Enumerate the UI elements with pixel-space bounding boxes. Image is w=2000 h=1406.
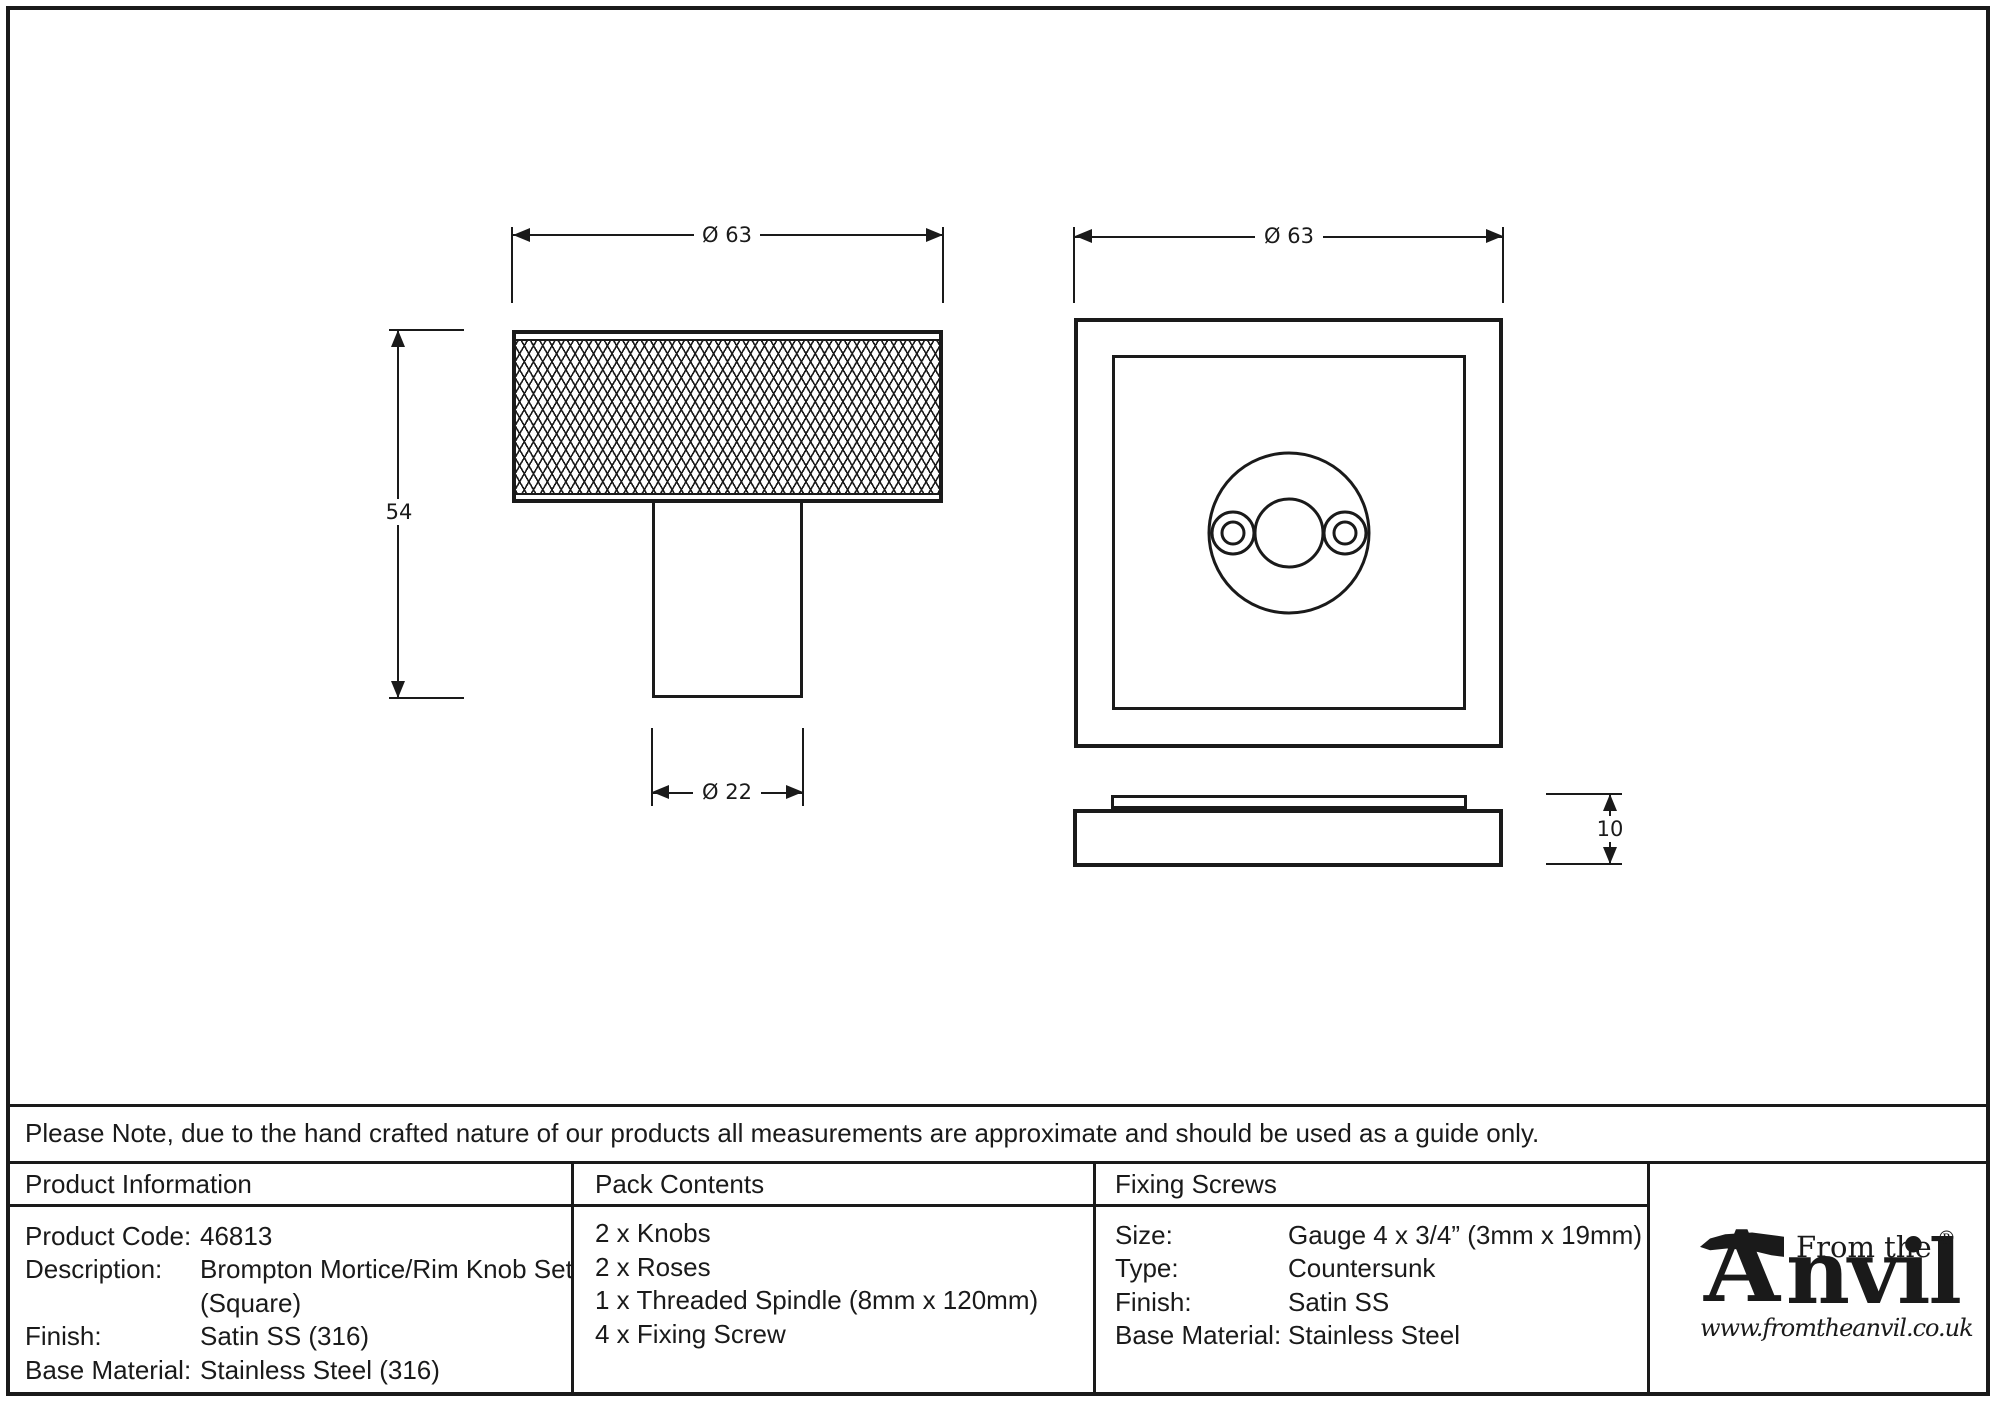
screw-base-material-label: Base Material: <box>1115 1321 1281 1349</box>
screw-hole-right-inner <box>1334 522 1356 544</box>
rose-width-dimension-label: Ø 63 <box>1255 223 1323 249</box>
knob-width-arrow-left <box>513 228 530 242</box>
pack-item: 4 x Fixing Screw <box>595 1320 786 1348</box>
product-information-header: Product Information <box>25 1163 252 1205</box>
knob-stem <box>652 503 803 698</box>
stem-arrow-right <box>786 785 803 799</box>
screw-hole-left-outer <box>1212 512 1254 554</box>
header-row-bottom-line <box>10 1204 1650 1207</box>
screw-type-label: Type: <box>1115 1254 1179 1282</box>
product-code-label: Product Code: <box>25 1222 191 1250</box>
pack-item: 1 x Threaded Spindle (8mm x 120mm) <box>595 1286 1038 1314</box>
knob-height-dimension-label: 54 <box>374 499 424 525</box>
rose-width-arrow-left <box>1075 229 1092 243</box>
pack-contents-header: Pack Contents <box>595 1163 764 1205</box>
screw-hole-right-outer <box>1324 512 1366 554</box>
screw-hole-left-inner <box>1222 522 1244 544</box>
anvil-icon <box>1700 1231 1784 1261</box>
page-border <box>6 6 1990 1396</box>
knob-height-arrow-top <box>391 330 405 347</box>
knob-knurl-pattern <box>516 339 939 495</box>
rose-boss-circle <box>1209 453 1369 613</box>
stem-arrow-left <box>652 785 669 799</box>
pack-item: 2 x Roses <box>595 1253 711 1281</box>
from-the-anvil-logo: A From the♦ nvil ® www.fromtheanvil.co.u… <box>1700 1225 1958 1343</box>
measurement-note: Please Note, due to the hand crafted nat… <box>25 1105 1539 1162</box>
rose-thickness-dimension-label: 10 <box>1585 816 1635 842</box>
screw-type-value: Countersunk <box>1288 1254 1435 1282</box>
spec-sheet: Ø 63 54 Ø 22 Ø 63 10 Please Note <box>0 0 2000 1406</box>
base-material-label: Base Material: <box>25 1356 191 1384</box>
rose-thickness-arrow-top <box>1603 794 1617 811</box>
pack-item: 2 x Knobs <box>595 1219 711 1247</box>
registered-trademark-icon: ® <box>1937 1227 1956 1249</box>
knob-width-arrow-right <box>926 228 943 242</box>
knob-height-arrow-bottom <box>391 681 405 698</box>
rose-thickness-arrow-bottom <box>1603 847 1617 864</box>
column-divider-screws-logo <box>1647 1161 1650 1396</box>
base-material-value: Stainless Steel (316) <box>200 1356 440 1384</box>
rose-side-top-plate <box>1111 795 1467 809</box>
stem-dimension-label: Ø 22 <box>693 779 761 805</box>
screw-base-material-value: Stainless Steel <box>1288 1321 1460 1349</box>
screw-size-label: Size: <box>1115 1221 1173 1249</box>
fixing-screws-header: Fixing Screws <box>1115 1163 1277 1205</box>
knob-width-dimension-label: Ø 63 <box>694 222 760 248</box>
description-label: Description: <box>25 1255 162 1283</box>
product-code-value: 46813 <box>200 1222 272 1250</box>
description-value-line2: (Square) <box>200 1289 301 1317</box>
screw-size-value: Gauge 4 x 3/4” (3mm x 19mm) <box>1288 1221 1642 1249</box>
rose-side-base <box>1073 809 1503 867</box>
column-divider-pack-screws <box>1093 1161 1096 1396</box>
logo-website-text: www.fromtheanvil.co.uk <box>1700 1314 1958 1342</box>
rose-width-arrow-right <box>1486 229 1503 243</box>
logo-nvil-text: nvil <box>1786 1228 1960 1316</box>
screw-finish-label: Finish: <box>1115 1288 1192 1316</box>
description-value: Brompton Mortice/Rim Knob Set <box>200 1255 573 1283</box>
finish-value: Satin SS (316) <box>200 1322 369 1350</box>
finish-label: Finish: <box>25 1322 102 1350</box>
spindle-hole-circle <box>1255 499 1323 567</box>
rose-center-detail <box>1205 449 1373 617</box>
screw-finish-value: Satin SS <box>1288 1288 1389 1316</box>
